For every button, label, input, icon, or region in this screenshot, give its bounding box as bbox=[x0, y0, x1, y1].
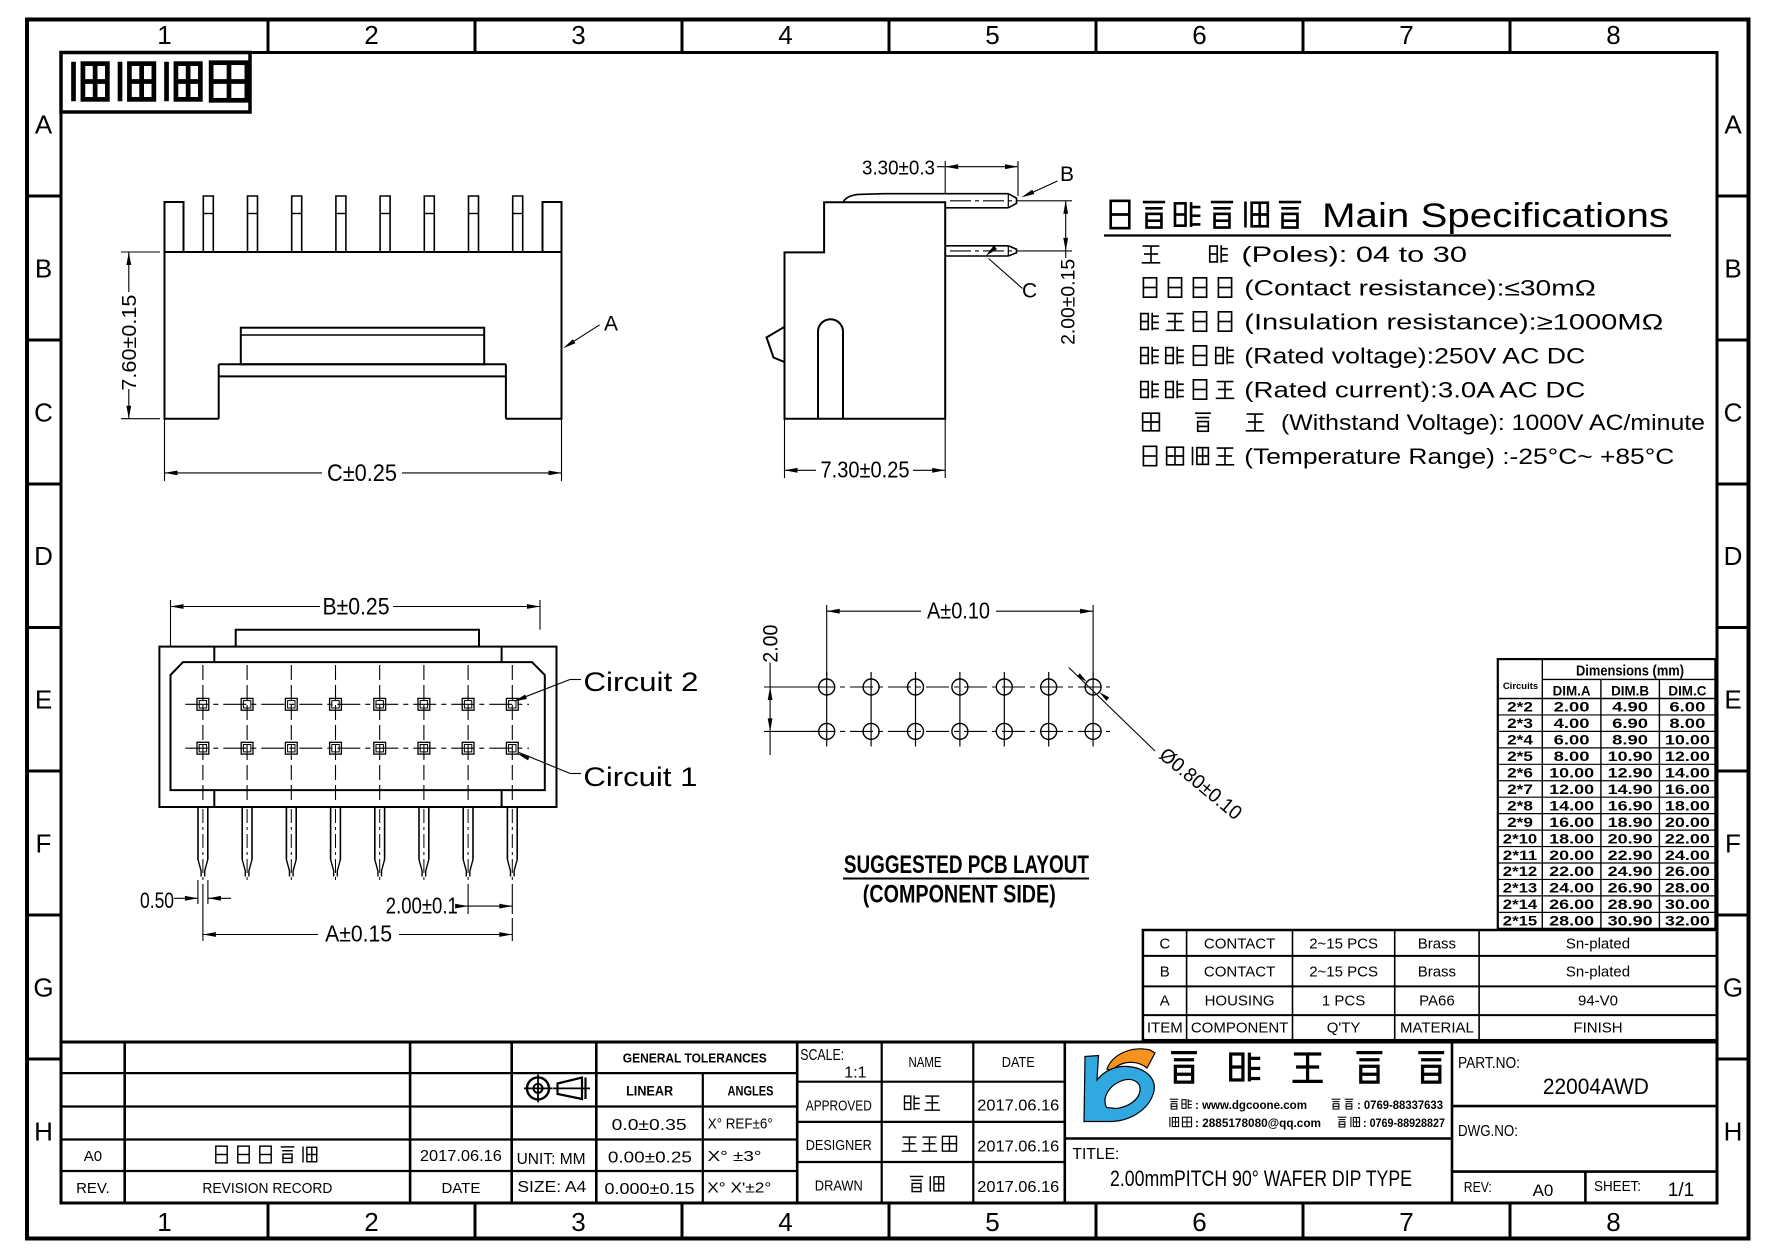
svg-text:12.00: 12.00 bbox=[1549, 782, 1594, 797]
svg-text:3: 3 bbox=[571, 1207, 585, 1237]
svg-text:2*5: 2*5 bbox=[1507, 749, 1533, 764]
svg-text:HOUSING: HOUSING bbox=[1205, 993, 1275, 1010]
svg-text:4: 4 bbox=[778, 20, 792, 50]
svg-text:7.30±0.25: 7.30±0.25 bbox=[821, 457, 910, 483]
svg-text:A: A bbox=[1160, 993, 1170, 1010]
svg-text:FINISH: FINISH bbox=[1573, 1020, 1622, 1037]
svg-text:2*10: 2*10 bbox=[1503, 831, 1538, 846]
svg-text:ANGLES: ANGLES bbox=[728, 1084, 774, 1099]
svg-text:CONTACT: CONTACT bbox=[1204, 936, 1275, 953]
svg-text:7: 7 bbox=[1399, 20, 1413, 50]
svg-text:2*13: 2*13 bbox=[1503, 881, 1538, 896]
svg-text:10.00: 10.00 bbox=[1549, 766, 1594, 781]
svg-text:22.00: 22.00 bbox=[1549, 864, 1594, 879]
svg-text:22.90: 22.90 bbox=[1608, 848, 1653, 863]
svg-text:G: G bbox=[1723, 973, 1743, 1003]
svg-text:20.00: 20.00 bbox=[1549, 848, 1594, 863]
svg-text:C: C bbox=[1159, 936, 1170, 953]
svg-text:DESIGNER: DESIGNER bbox=[806, 1138, 872, 1154]
svg-text:(Rated current):3.0A AC DC: (Rated current):3.0A AC DC bbox=[1244, 378, 1585, 403]
svg-text:(COMPONENT SIDE): (COMPONENT SIDE) bbox=[863, 881, 1056, 909]
svg-text:4.00: 4.00 bbox=[1554, 716, 1590, 731]
svg-text:MATERIAL: MATERIAL bbox=[1400, 1020, 1474, 1037]
svg-text:A: A bbox=[1724, 110, 1742, 140]
svg-text:12.90: 12.90 bbox=[1608, 766, 1653, 781]
svg-text:X° X'±2°: X° X'±2° bbox=[707, 1180, 771, 1197]
svg-text:X° REF±6°: X° REF±6° bbox=[708, 1116, 773, 1133]
svg-text:7: 7 bbox=[1399, 1207, 1413, 1237]
svg-text:F: F bbox=[1725, 829, 1741, 859]
svg-text:H: H bbox=[1724, 1117, 1743, 1147]
svg-text:14.00: 14.00 bbox=[1549, 798, 1594, 813]
svg-text:0.50: 0.50 bbox=[140, 888, 174, 913]
svg-text:UNIT: MM: UNIT: MM bbox=[517, 1151, 586, 1168]
svg-text:8: 8 bbox=[1606, 1207, 1620, 1237]
svg-text:32.00: 32.00 bbox=[1665, 914, 1710, 929]
svg-text:A±0.10: A±0.10 bbox=[927, 598, 990, 624]
svg-text:2: 2 bbox=[364, 1207, 378, 1237]
svg-text:B: B bbox=[35, 254, 52, 284]
svg-text:Circuits: Circuits bbox=[1503, 681, 1538, 692]
svg-text:2.00: 2.00 bbox=[1554, 700, 1590, 715]
svg-text:6.00: 6.00 bbox=[1554, 733, 1590, 748]
svg-text:24.90: 24.90 bbox=[1608, 864, 1653, 879]
svg-text:18.00: 18.00 bbox=[1549, 831, 1594, 846]
svg-text:REV:: REV: bbox=[1464, 1179, 1492, 1196]
svg-text:REV.: REV. bbox=[76, 1180, 110, 1197]
svg-text:6.90: 6.90 bbox=[1612, 716, 1648, 731]
svg-text:SCALE:: SCALE: bbox=[800, 1047, 844, 1064]
svg-text:8.00: 8.00 bbox=[1554, 749, 1590, 764]
svg-text:REVISION RECORD: REVISION RECORD bbox=[202, 1180, 332, 1197]
svg-text:A: A bbox=[604, 313, 618, 336]
svg-text:SIZE: A4: SIZE: A4 bbox=[517, 1179, 586, 1196]
svg-text:Q'TY: Q'TY bbox=[1327, 1020, 1361, 1037]
svg-text:2.00±0.1: 2.00±0.1 bbox=[386, 893, 458, 919]
svg-text:26.90: 26.90 bbox=[1608, 881, 1653, 896]
svg-text:B: B bbox=[1724, 254, 1741, 284]
svg-text:(Poles): 04 to 30: (Poles): 04 to 30 bbox=[1241, 242, 1467, 267]
svg-text:DWG.NO:: DWG.NO: bbox=[1458, 1123, 1518, 1140]
svg-text:Main Specifications: Main Specifications bbox=[1322, 197, 1669, 235]
svg-text:2*15: 2*15 bbox=[1503, 914, 1538, 929]
svg-text:GENERAL TOLERANCES: GENERAL TOLERANCES bbox=[623, 1051, 767, 1066]
svg-text:2*6: 2*6 bbox=[1507, 766, 1533, 781]
svg-text:(Rated voltage):250V AC DC: (Rated voltage):250V AC DC bbox=[1244, 344, 1585, 369]
svg-text:94-V0: 94-V0 bbox=[1578, 993, 1618, 1010]
svg-text:2.00±0.15: 2.00±0.15 bbox=[1059, 259, 1080, 345]
svg-text:2017.06.16: 2017.06.16 bbox=[977, 1139, 1059, 1156]
svg-text:0.000±0.15: 0.000±0.15 bbox=[605, 1181, 695, 1198]
svg-text:1/1: 1/1 bbox=[1668, 1180, 1694, 1201]
svg-text:E: E bbox=[1724, 685, 1741, 715]
svg-text:12.00: 12.00 bbox=[1665, 749, 1710, 764]
svg-text:2.00mmPITCH 90° WAFER DIP TYPE: 2.00mmPITCH 90° WAFER DIP TYPE bbox=[1110, 1166, 1412, 1191]
svg-text:DATE: DATE bbox=[1002, 1055, 1035, 1071]
svg-text:2: 2 bbox=[364, 20, 378, 50]
svg-text:26.00: 26.00 bbox=[1665, 864, 1710, 879]
svg-text:5: 5 bbox=[985, 1207, 999, 1237]
svg-text:(Contact resistance):≤30mΩ: (Contact resistance):≤30mΩ bbox=[1244, 276, 1596, 301]
svg-text:SHEET:: SHEET: bbox=[1594, 1178, 1641, 1195]
svg-text:22004AWD: 22004AWD bbox=[1543, 1074, 1649, 1099]
svg-text:LINEAR: LINEAR bbox=[626, 1084, 673, 1099]
svg-text:2017.06.16: 2017.06.16 bbox=[420, 1148, 502, 1165]
svg-text:SUGGESTED PCB LAYOUT: SUGGESTED PCB LAYOUT bbox=[844, 851, 1089, 879]
svg-text:14.00: 14.00 bbox=[1665, 766, 1710, 781]
svg-text:2~15 PCS: 2~15 PCS bbox=[1309, 936, 1378, 953]
svg-text:2*11: 2*11 bbox=[1503, 848, 1538, 863]
svg-text:2*12: 2*12 bbox=[1503, 864, 1538, 879]
svg-text:1: 1 bbox=[157, 1207, 171, 1237]
svg-text:C: C bbox=[1022, 280, 1037, 303]
svg-text:18.00: 18.00 bbox=[1665, 798, 1710, 813]
svg-text:30.00: 30.00 bbox=[1665, 897, 1710, 912]
svg-text:G: G bbox=[33, 973, 53, 1003]
svg-text:2017.06.16: 2017.06.16 bbox=[977, 1179, 1059, 1196]
svg-text:16.00: 16.00 bbox=[1665, 782, 1710, 797]
svg-text:3: 3 bbox=[571, 20, 585, 50]
svg-text:2017.06.16: 2017.06.16 bbox=[977, 1098, 1059, 1115]
svg-text:10.00: 10.00 bbox=[1665, 733, 1710, 748]
svg-text:PA66: PA66 bbox=[1419, 993, 1455, 1010]
svg-text:PART.NO:: PART.NO: bbox=[1458, 1055, 1520, 1072]
svg-text:1 PCS: 1 PCS bbox=[1322, 993, 1365, 1010]
svg-text:2*4: 2*4 bbox=[1507, 733, 1533, 748]
svg-text:F: F bbox=[36, 829, 52, 859]
svg-text:2*3: 2*3 bbox=[1507, 716, 1533, 731]
svg-text:8: 8 bbox=[1606, 20, 1620, 50]
svg-text:DIM.C: DIM.C bbox=[1668, 683, 1706, 698]
svg-text:4.90: 4.90 bbox=[1612, 700, 1648, 715]
svg-text:Dimensions (mm): Dimensions (mm) bbox=[1576, 663, 1684, 680]
svg-text:7.60±0.15: 7.60±0.15 bbox=[119, 295, 141, 391]
svg-text:A±0.15: A±0.15 bbox=[325, 921, 392, 947]
svg-text:8.90: 8.90 bbox=[1612, 733, 1648, 748]
svg-text:0.00±0.25: 0.00±0.25 bbox=[608, 1150, 692, 1167]
svg-text:DRAWN: DRAWN bbox=[815, 1178, 863, 1194]
svg-text:30.90: 30.90 bbox=[1608, 914, 1653, 929]
svg-text:10.90: 10.90 bbox=[1608, 749, 1653, 764]
svg-text:16.00: 16.00 bbox=[1549, 815, 1594, 830]
svg-text:2*8: 2*8 bbox=[1507, 798, 1533, 813]
svg-text:Circuit 2: Circuit 2 bbox=[583, 667, 698, 697]
svg-text:28.00: 28.00 bbox=[1549, 914, 1594, 929]
svg-text:CONTACT: CONTACT bbox=[1204, 964, 1275, 981]
svg-text:20.90: 20.90 bbox=[1608, 831, 1653, 846]
svg-text:E: E bbox=[35, 685, 52, 715]
svg-text:X° ±3°: X° ±3° bbox=[708, 1148, 762, 1165]
svg-text:28.00: 28.00 bbox=[1665, 881, 1710, 896]
svg-text:DATE: DATE bbox=[441, 1180, 480, 1197]
svg-text:: 2885178080@qq.com: : 2885178080@qq.com bbox=[1195, 1116, 1321, 1130]
svg-text:COMPONENT: COMPONENT bbox=[1191, 1020, 1289, 1037]
svg-text:2.00: 2.00 bbox=[760, 625, 783, 663]
svg-text:8.00: 8.00 bbox=[1669, 716, 1705, 731]
svg-text:A0: A0 bbox=[1533, 1181, 1554, 1200]
svg-text:6.00: 6.00 bbox=[1669, 700, 1705, 715]
svg-text:22.00: 22.00 bbox=[1665, 831, 1710, 846]
svg-text:Sn-plated: Sn-plated bbox=[1566, 964, 1630, 981]
svg-text:2*9: 2*9 bbox=[1507, 815, 1533, 830]
svg-text:16.90: 16.90 bbox=[1608, 798, 1653, 813]
svg-text:: 0769-88928827: : 0769-88928827 bbox=[1363, 1116, 1445, 1130]
svg-text:Brass: Brass bbox=[1418, 936, 1456, 953]
svg-text:H: H bbox=[34, 1117, 53, 1147]
svg-text:A0: A0 bbox=[84, 1148, 102, 1165]
svg-text:14.90: 14.90 bbox=[1608, 782, 1653, 797]
svg-text:4: 4 bbox=[778, 1207, 792, 1237]
svg-text:ITEM: ITEM bbox=[1147, 1020, 1183, 1037]
svg-text:Sn-plated: Sn-plated bbox=[1566, 936, 1630, 953]
svg-text:DIM.B: DIM.B bbox=[1611, 683, 1649, 698]
svg-text:(Insulation resistance):≥1000M: (Insulation resistance):≥1000MΩ bbox=[1244, 310, 1663, 335]
svg-text:6: 6 bbox=[1192, 20, 1206, 50]
svg-text:C: C bbox=[1724, 398, 1743, 428]
svg-text:2~15 PCS: 2~15 PCS bbox=[1309, 964, 1378, 981]
svg-text:24.00: 24.00 bbox=[1549, 881, 1594, 896]
svg-text:24.00: 24.00 bbox=[1665, 848, 1710, 863]
svg-text:2*7: 2*7 bbox=[1507, 782, 1533, 797]
svg-text:Circuit 1: Circuit 1 bbox=[583, 762, 697, 792]
svg-text:D: D bbox=[1724, 541, 1743, 571]
svg-text:28.90: 28.90 bbox=[1608, 897, 1653, 912]
svg-text:1: 1 bbox=[157, 20, 171, 50]
svg-text:3.30±0.3: 3.30±0.3 bbox=[862, 158, 935, 180]
svg-text:(Temperature Range) :-25°C~ +8: (Temperature Range) :-25°C~ +85°C bbox=[1244, 444, 1674, 469]
svg-text:18.90: 18.90 bbox=[1608, 815, 1653, 830]
svg-text:B±0.25: B±0.25 bbox=[323, 594, 390, 621]
svg-text:B: B bbox=[1160, 964, 1170, 981]
svg-text:D: D bbox=[34, 541, 53, 571]
svg-text:C±0.25: C±0.25 bbox=[327, 460, 397, 487]
svg-text:DIM.A: DIM.A bbox=[1553, 683, 1591, 698]
svg-text:B: B bbox=[1060, 163, 1074, 186]
svg-text:2*14: 2*14 bbox=[1503, 897, 1538, 912]
svg-text:2*2: 2*2 bbox=[1507, 700, 1533, 715]
svg-text:APPROVED: APPROVED bbox=[806, 1099, 872, 1115]
svg-text:1:1: 1:1 bbox=[844, 1065, 866, 1082]
svg-text:6: 6 bbox=[1192, 1207, 1206, 1237]
svg-text:A: A bbox=[35, 110, 53, 140]
svg-text:: 0769-88337633: : 0769-88337633 bbox=[1357, 1098, 1443, 1112]
svg-text:NAME: NAME bbox=[909, 1055, 942, 1071]
svg-text:C: C bbox=[34, 398, 53, 428]
svg-text:: www.dgcoone.com: : www.dgcoone.com bbox=[1195, 1098, 1307, 1112]
svg-text:Brass: Brass bbox=[1418, 964, 1456, 981]
svg-text:(Withstand Voltage): 1000V AC/: (Withstand Voltage): 1000V AC/minute bbox=[1281, 410, 1705, 435]
svg-text:0.0±0.35: 0.0±0.35 bbox=[612, 1117, 687, 1134]
svg-text:20.00: 20.00 bbox=[1665, 815, 1710, 830]
svg-text:5: 5 bbox=[985, 20, 999, 50]
svg-text:TITLE:: TITLE: bbox=[1072, 1146, 1119, 1163]
svg-text:26.00: 26.00 bbox=[1549, 897, 1594, 912]
